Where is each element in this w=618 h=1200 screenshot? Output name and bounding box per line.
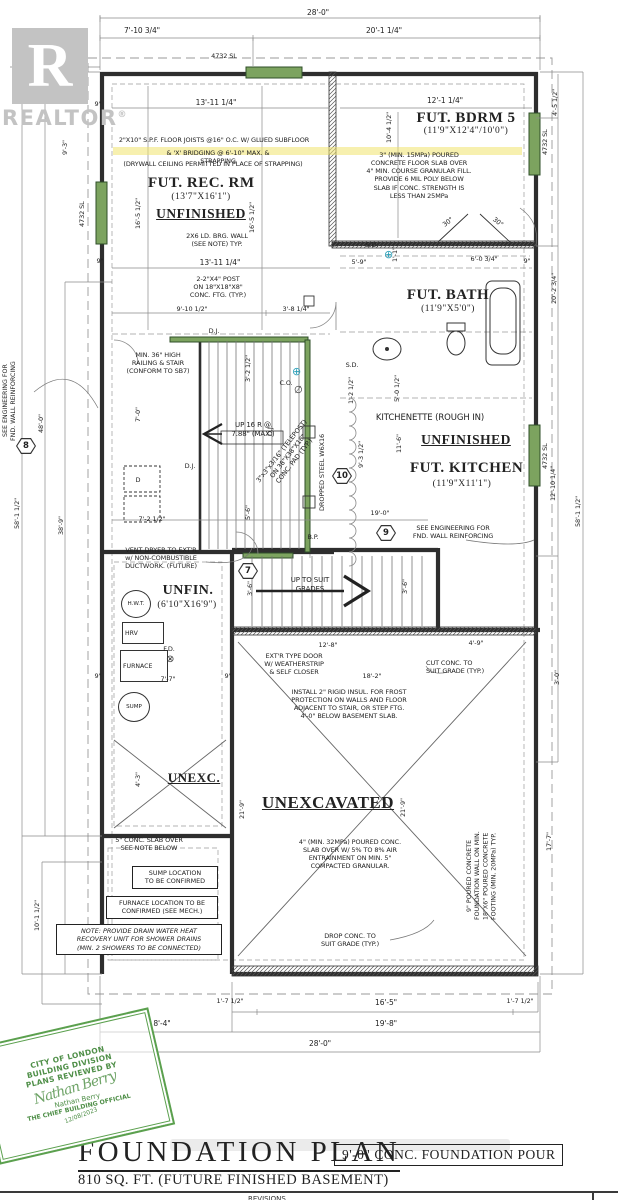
dim-38-9: 38'-9" xyxy=(57,506,65,546)
dim-12-10: 12'-10 1/4" xyxy=(549,458,557,508)
dim-19-0: 19'-0" xyxy=(362,509,398,517)
kitchenette-roughin-line xyxy=(349,398,356,566)
bath-fixtures xyxy=(114,214,520,554)
room-bath-title: FUT. BATH xyxy=(398,286,498,305)
note-railing: MIN. 36" HIGH RAILING & STAIR (CONFORM T… xyxy=(126,351,190,375)
note-eng-mid: SEE ENGINEERING FOR FND. WALL REINFORCIN… xyxy=(398,524,508,540)
revisions-label: REVISIONS xyxy=(248,1195,286,1200)
leader-lines xyxy=(34,208,537,940)
note-rigid-insul: INSTALL 2" RIGID INSUL. FOR FROST PROTEC… xyxy=(286,688,412,721)
dim-58-right: 58'-1 1/2" xyxy=(574,486,582,536)
hwt-tank: H.W.T. xyxy=(121,590,151,618)
room-kitchen-size: (11'9"X11'1") xyxy=(420,479,504,491)
toilet-bowl xyxy=(447,331,465,355)
dim-17-7: 17'-7" xyxy=(545,824,553,860)
titleblock-divider xyxy=(0,1191,618,1193)
dim-5-9: 5'-9" xyxy=(344,258,374,266)
dim-w9-d: 9" xyxy=(92,672,104,680)
dim-7-7: 7'-7" xyxy=(152,675,184,683)
realtor-wordmark: REALTOR® xyxy=(2,106,128,130)
room-mech-size: (6'10"X16'9") xyxy=(146,600,228,612)
label-fd: F.D. xyxy=(158,645,180,653)
note-drop-conc: DROP CONC. TO SUIT GRADE (TYP.) xyxy=(310,932,390,948)
sump-pit: SUMP xyxy=(118,692,150,722)
note-post: 2-2"X4" POST ON 18"X18"X8" CONC. FTG. (T… xyxy=(182,275,254,299)
room-rec-size: (13'7"X16'1") xyxy=(150,192,252,204)
label-sd-2: S.D. xyxy=(340,361,364,369)
dim-5-6: 5'-6" xyxy=(244,498,252,528)
dim-4-9: 4'-9" xyxy=(458,639,494,647)
dim-7-2: 7'-2 1/2" xyxy=(130,515,174,523)
note-joists: 2"X10" S.P.F. FLOOR JOISTS @16" O.C. W/ … xyxy=(113,136,315,144)
dim-3-6-left: 3'-6" xyxy=(246,576,254,602)
pour-note-box: 9'-0" CONC. FOUNDATION POUR xyxy=(334,1144,563,1166)
note-box-sump: SUMP LOCATION TO BE CONFIRMED xyxy=(132,866,218,889)
dim-58-left: 58'-1 1/2" xyxy=(13,488,21,538)
dim-rec-width: 13'-11 1/4" xyxy=(188,98,244,107)
foundation-plan-sheet: R REALTOR® 28'-0" 7'-10 3/4" 20'-1 1/4" … xyxy=(0,0,618,1200)
dim-3-2: 3'-2 1/2" xyxy=(244,348,252,388)
room-mech-title: UNFIN. xyxy=(158,582,218,600)
label-dj-2: D.J. xyxy=(178,462,202,470)
note-eng-left: SEE ENGINEERING FOR FND. WALL REINFORCIN… xyxy=(2,342,18,460)
note-slab4: 4" (MIN. 32MPa) POURED CONC. SLAB OVER W… xyxy=(284,838,416,871)
room-unexc-large: UNEXCAVATED xyxy=(258,792,398,813)
room-bath-size: (11'9"X5'0") xyxy=(400,304,496,316)
smoke-detector-icon-2: ⊕ xyxy=(292,366,301,377)
note-slab5: 5" CONC. SLAB OVER SEE NOTE BELOW xyxy=(106,836,192,852)
dim-w9-a: 9" xyxy=(92,100,104,108)
note-vent-dryer: VENT DRYER TO EXT'R w/ NON-COMBUSTIBLE D… xyxy=(114,546,208,570)
dim-9-10: 9'-10 1/2" xyxy=(166,305,218,313)
room-rec-status: UNFINISHED xyxy=(150,206,252,223)
room-bdrm-size: (11'9"X12'4"/10'0") xyxy=(412,126,520,138)
dim-20-2: 20'-2 3/4" xyxy=(550,264,558,312)
dim-4-3: 4'-3" xyxy=(134,764,142,796)
room-bdrm-title: FUT. BDRM 5 xyxy=(414,109,518,128)
dim-10-1: 10'-1 1/2" xyxy=(33,890,41,940)
dim-9-3h: 9'-3 1/2" xyxy=(357,430,365,478)
dim-4-5: 4'-5 1/2" xyxy=(551,82,559,122)
dim-19-8: 19'-8" xyxy=(358,1019,414,1028)
dim-16-5-left: 16'-5 1/2" xyxy=(134,188,142,238)
dim-6-0: 6'-0 3/4" xyxy=(458,255,510,263)
window-label-right-top: 4732 SL xyxy=(541,120,549,164)
note-box-dwhr: NOTE: PROVIDE DRAIN WATER HEAT RECOVERY … xyxy=(56,924,222,955)
dim-w9-c: 9" xyxy=(521,257,533,265)
realtor-logo-letter: R xyxy=(28,35,73,97)
dim-w9-b: 9" xyxy=(94,257,106,265)
label-dropped-steel: DROPPED STEEL W6X16 xyxy=(318,402,326,542)
dim-16-5-bottom: 16'-5" xyxy=(358,998,414,1007)
note-up-grades: UP TO SUIT GRADES xyxy=(282,576,338,594)
hrv-unit: HRV xyxy=(122,622,164,644)
registered-mark-icon: ® xyxy=(118,110,129,120)
smoke-detector-icon: ⊕ xyxy=(384,249,393,260)
window-label-right-kitchen: 4732 SL xyxy=(541,434,549,478)
realtor-logo: R xyxy=(12,28,88,104)
dim-5-0: 5'-0 1/2" xyxy=(393,366,401,410)
label-sd-1: S.D. xyxy=(360,241,384,249)
room-kitchen-status: UNFINISHED xyxy=(418,432,514,449)
room-kitchen-title: FUT. KITCHEN xyxy=(410,459,514,478)
room-rec-title: FUT. REC. RM xyxy=(148,174,254,193)
label-dj-1: D.J. xyxy=(202,327,226,335)
dim-12-8: 12'-8" xyxy=(308,641,348,649)
dim-21-9-left: 21'-9" xyxy=(238,792,246,828)
note-cut-conc: CUT CONC. TO SUIT GRADE (TYP.) xyxy=(426,659,504,675)
note-fnd-wall: 9" POURED CONCRETE FOUNDATION WALL ON MI… xyxy=(466,800,499,952)
dim-1-7-right: 1'-7 1/2" xyxy=(498,997,542,1005)
room-unexc-small: UNEXC. xyxy=(164,770,224,786)
note-slab3: 3" (MIN. 15MPa) POURED CONCRETE FLOOR SL… xyxy=(358,151,480,200)
dim-1-7-left: 1'-7 1/2" xyxy=(208,997,252,1005)
label-dryer: D xyxy=(132,476,144,484)
dim-21-9-right: 21'-9" xyxy=(399,790,407,826)
dim-rec-width-2: 13'-11 1/4" xyxy=(192,258,248,267)
note-brg-wall: 2X6 LD. BRG. WALL (SEE NOTE) TYP. xyxy=(178,232,256,248)
floor-drain-icon: ⊗ xyxy=(166,655,174,665)
note-box-furnace: FURNACE LOCATION TO BE CONFIRMED (SEE ME… xyxy=(106,896,218,919)
dim-top-left: 7'-10 3/4" xyxy=(110,26,174,35)
note-up16: UP 16 R @ 7.88" (MAX.) xyxy=(224,421,282,439)
dim-28-0-bottom: 28'-0" xyxy=(292,1039,348,1048)
room-kitchenette-label: KITCHENETTE (ROUGH IN) xyxy=(360,413,500,424)
dim-top-right: 20'-1 1/4" xyxy=(352,26,416,35)
dim-9-3: 9'-3" xyxy=(61,128,69,168)
cleanout-icon: ∅ xyxy=(294,386,303,396)
dim-3-8: 3'-8 1/4" xyxy=(272,305,320,313)
titleblock-column-divider xyxy=(592,1191,594,1200)
window-label-left: 4732 SL xyxy=(78,192,86,236)
dim-3-0: 3'-0" xyxy=(553,664,561,692)
toilet-tank xyxy=(447,323,465,331)
dim-bdrm-width: 12'-1 1/4" xyxy=(418,96,472,105)
dim-48-0: 48'-0" xyxy=(37,404,45,444)
dim-w9-e: 9" xyxy=(222,672,234,680)
dim-3-6-right: 3'-6" xyxy=(401,574,409,600)
sheet-subtitle: 810 SQ. FT. (FUTURE FINISHED BASEMENT) xyxy=(78,1172,389,1189)
dim-7-0: 7'-0" xyxy=(134,400,142,430)
dim-1-2: 1'-2 1/2" xyxy=(347,370,355,410)
dim-bdrm-height: 10'-4 1/2" xyxy=(385,106,393,148)
note-ext-door: EXT'R TYPE DOOR W/ WEATHERSTRIP & SELF C… xyxy=(258,652,330,676)
dim-overall-top: 28'-0" xyxy=(288,8,348,17)
note-drywall: (DRYWALL CEILING PERMITTED IN PLACE OF S… xyxy=(110,160,316,168)
dim-11-6: 11'-6" xyxy=(395,426,403,462)
window-label-top: 4732 SL xyxy=(200,52,248,60)
dim-18-2: 18'-2" xyxy=(352,672,392,680)
